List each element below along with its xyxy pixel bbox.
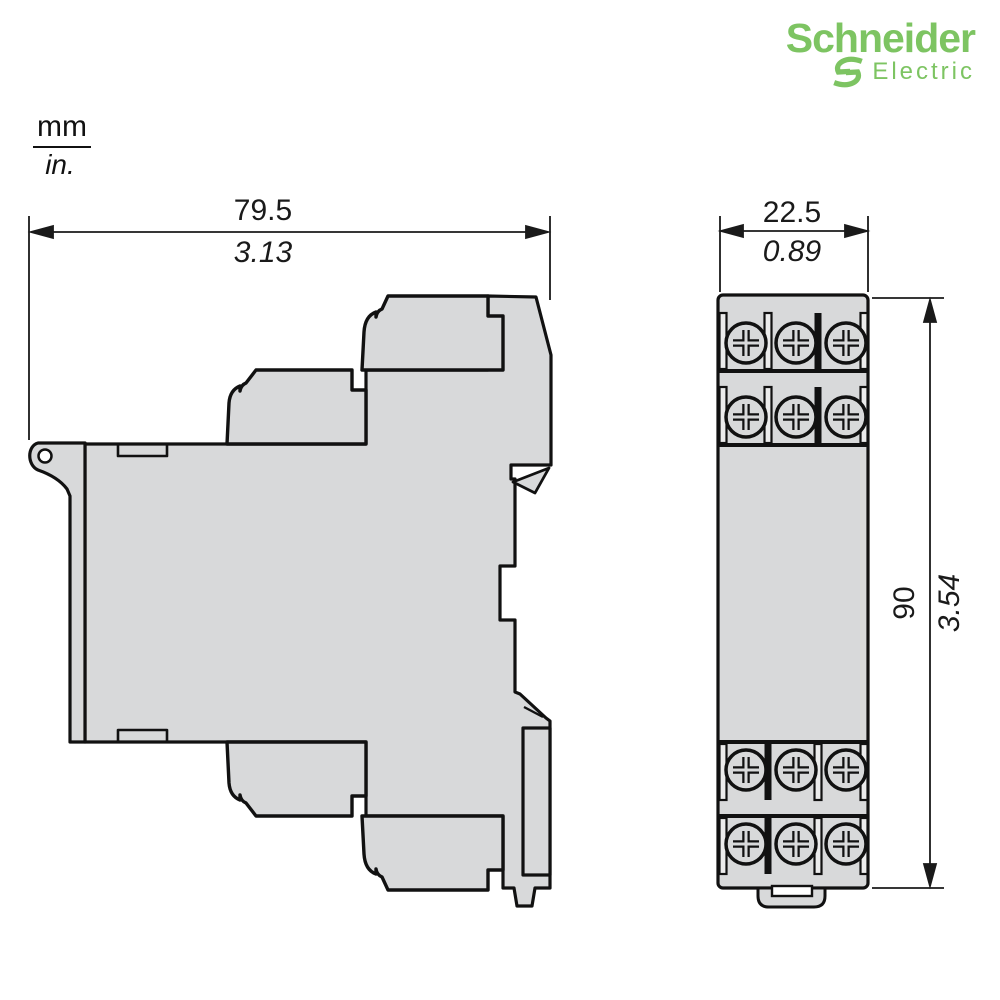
- arrowhead-up-icon: [924, 300, 936, 322]
- screw-icon: [776, 397, 816, 437]
- dim-front-width-mm: 22.5: [727, 196, 857, 230]
- screw-icon: [826, 397, 866, 437]
- dim-height-in: 3.54: [933, 558, 967, 648]
- dim-front-width-in: 0.89: [727, 235, 857, 269]
- terminal-block-bottom-2: [362, 816, 503, 890]
- units-legend: mm in.: [33, 110, 87, 181]
- dim-height-mm: 90: [888, 561, 922, 645]
- brand-subname: Electric: [872, 58, 975, 86]
- screw-icon: [726, 397, 766, 437]
- side-view: [30, 296, 551, 906]
- brand-name: Schneider: [786, 18, 975, 59]
- din-hook-tooth: [513, 468, 549, 493]
- front-view: [718, 295, 868, 907]
- schneider-glyph-icon: [828, 55, 868, 89]
- din-slide: [523, 728, 550, 875]
- screw-icon: [776, 824, 816, 864]
- screw-icon: [826, 323, 866, 363]
- front-body: [718, 295, 868, 888]
- arrowhead-left-icon: [31, 226, 53, 238]
- units-mm-label: mm: [33, 110, 91, 148]
- screw-icon: [826, 750, 866, 790]
- brand-logo: Schneider Electric: [786, 18, 975, 89]
- clip-foot-slot: [772, 886, 812, 896]
- dim-side-width-mm: 79.5: [198, 194, 328, 228]
- screw-icon: [726, 323, 766, 363]
- dim-side-width-in: 3.13: [198, 236, 328, 270]
- arm-hole: [39, 450, 52, 463]
- arrowhead-down-icon: [924, 864, 936, 886]
- terminal-block-top-1: [362, 296, 503, 370]
- screw-icon: [826, 824, 866, 864]
- side-mounting-arm: [30, 443, 85, 742]
- screw-icon: [726, 824, 766, 864]
- screw-icon: [726, 750, 766, 790]
- screw-icon: [776, 323, 816, 363]
- units-in-label: in.: [33, 149, 87, 181]
- terminal-block-bottom-1: [227, 742, 366, 816]
- technical-drawing: [0, 0, 1000, 1000]
- screw-icon: [776, 750, 816, 790]
- terminal-block-top-2: [227, 370, 366, 444]
- arrowhead-right-icon: [526, 226, 548, 238]
